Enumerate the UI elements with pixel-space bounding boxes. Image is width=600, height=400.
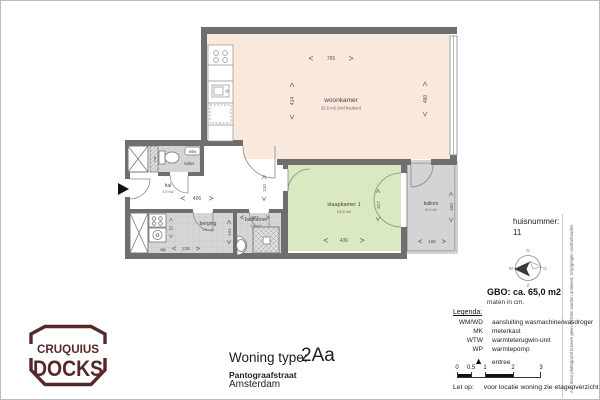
meterkast-label: mk <box>152 156 157 161</box>
svg-text:207: 207 <box>251 215 259 220</box>
wp-label: wp <box>160 247 166 252</box>
wtw-unit: wtw <box>185 147 200 155</box>
scale-label-2: 2 <box>511 365 514 371</box>
legend-desc-wmwd: aansluiting wasmachine/wasdroger <box>492 319 593 326</box>
shaft-top <box>128 146 148 172</box>
scale-label-1: 1 <box>483 365 486 371</box>
legend-desc-mk: meterkast <box>492 328 521 335</box>
shaft-bottom <box>130 213 148 253</box>
label-slaapkamer-area: 13.8 m2 <box>337 209 352 214</box>
label-woonkamer: woonkamer <box>323 97 358 104</box>
note-row: Let op:voor locatie woning zie etageover… <box>453 384 600 391</box>
scale-label-05: 0.5 <box>467 365 475 371</box>
compass-o: O <box>543 266 547 271</box>
legend-desc-wp: warmtepomp <box>492 346 530 353</box>
label-hal: hal <box>165 183 172 189</box>
wtw-label: wtw <box>189 149 197 154</box>
scale-bar: 0 0.5 1 2 3 <box>457 365 541 379</box>
svg-text:406: 406 <box>193 196 202 202</box>
window-band <box>450 36 457 155</box>
svg-text:228: 228 <box>182 246 190 251</box>
legend-row-wp: WPwarmtepomp <box>453 346 530 353</box>
entree-marker <box>118 183 129 195</box>
svg-text:62: 62 <box>169 225 174 230</box>
compass-n: N <box>526 248 529 253</box>
label-berging-area: 3.6 m2 <box>202 228 214 232</box>
legend-key-wmwd: WM/WD <box>453 319 483 326</box>
huisnummer-label: huisnummer: <box>513 217 559 228</box>
huisnummer-value: 11 <box>513 228 559 239</box>
legend-row-mk: MKmeterkast <box>453 328 521 335</box>
label-berging: berging <box>200 221 217 227</box>
note-prefix: Let op: <box>453 384 474 391</box>
svg-text:300: 300 <box>449 203 454 211</box>
legend-title: Legenda: <box>453 309 482 316</box>
units-note: maten in cm. <box>487 299 524 306</box>
label-hal-area: 3.9 m2 <box>162 190 174 194</box>
disclaimer-text: Aan deze plattegrond kunnen geen rechten… <box>569 223 574 393</box>
shower <box>253 227 279 253</box>
svg-text:101: 101 <box>227 228 232 236</box>
legend-key-wp: WP <box>453 346 483 353</box>
gbo-text: GBO: ca. 65,0 m2 <box>487 287 561 297</box>
label-toilet: toilet <box>184 161 194 166</box>
meterkast: mk <box>150 146 158 172</box>
legend-row-wmwd: WM/WDaansluiting wasmachine/wasdroger <box>453 319 593 326</box>
scale-label-3: 3 <box>539 365 542 371</box>
legend-row-wtw: WTWwarmteterugwin-unit <box>453 337 551 344</box>
label-badkamer-area: 3.6 m2 <box>250 224 262 228</box>
city-name: Amsterdam <box>229 379 280 390</box>
dim-hal-width: 406 <box>181 196 213 202</box>
washer-dryer <box>149 214 166 242</box>
cruquius-docks-logo: CRUQUIUS DOCKS <box>27 323 109 389</box>
label-woonkamer-area: 32.6 m2 (incl keuken) <box>321 106 362 111</box>
label-balkon: balkon <box>424 201 439 207</box>
room-balkon <box>407 163 455 251</box>
svg-text:436: 436 <box>340 238 349 244</box>
svg-text:317: 317 <box>376 201 381 209</box>
scale-label-0: 0 <box>455 365 458 371</box>
svg-text:765: 765 <box>327 56 336 62</box>
svg-text:120: 120 <box>262 184 267 192</box>
label-slaapkamer: slaapkamer 1 <box>327 202 361 208</box>
legend-key-wtw: WTW <box>453 337 483 344</box>
svg-text:480: 480 <box>423 95 429 104</box>
dim-corridor: 120 <box>262 176 267 201</box>
label-balkon-area: 5.0 m2 <box>425 208 437 212</box>
logo-line2: DOCKS <box>33 356 103 381</box>
legend-desc-wtw: warmteterugwin-unit <box>492 337 551 344</box>
logo-line1: CRUQUIUS <box>37 342 99 356</box>
toilet-wc <box>159 151 179 164</box>
kitchen-counter <box>208 45 233 141</box>
woning-type-label: Woning type: <box>229 350 308 365</box>
huisnummer-block: huisnummer: 11 <box>513 217 559 239</box>
svg-text:414: 414 <box>290 97 296 106</box>
woning-type-value: 2Aa <box>301 345 335 367</box>
note-text: voor locatie woning zie etageoverzicht. <box>484 384 600 391</box>
compass-w: W <box>509 266 514 271</box>
legend-key-mk: MK <box>453 328 483 335</box>
floorplan-sheet: mk <box>0 0 600 400</box>
scale-bar-line <box>457 373 541 378</box>
compass: N O Z W <box>509 248 547 288</box>
svg-text:186: 186 <box>428 239 436 244</box>
